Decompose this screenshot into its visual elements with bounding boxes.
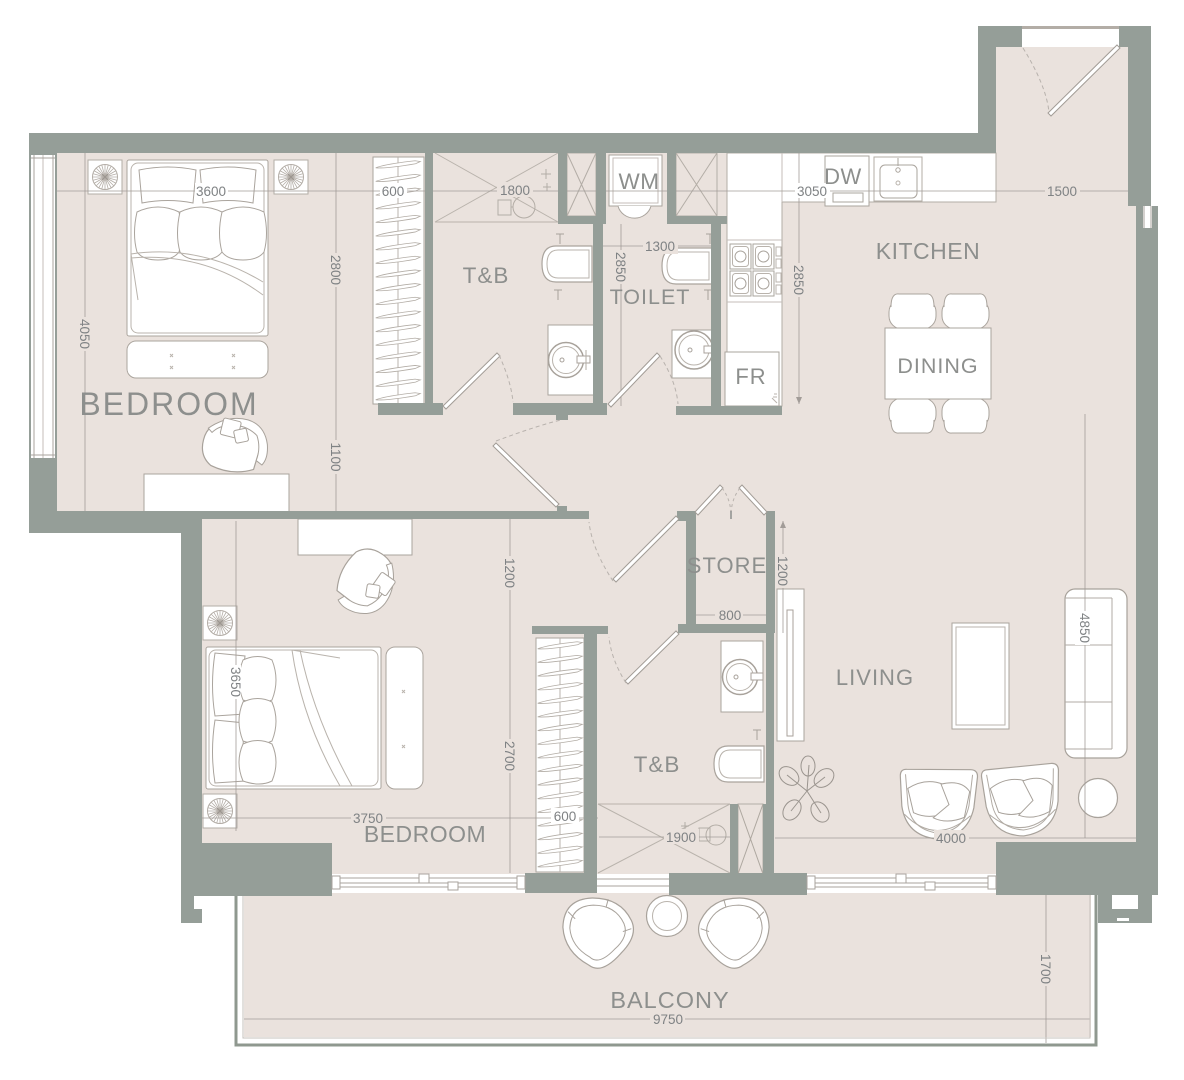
svg-text:T&B: T&B (463, 263, 510, 288)
svg-text:BEDROOM: BEDROOM (79, 386, 258, 422)
svg-text:600: 600 (554, 809, 577, 824)
svg-text:3650: 3650 (228, 667, 243, 697)
svg-text:T&B: T&B (634, 752, 681, 777)
svg-text:FR: FR (735, 364, 766, 389)
svg-text:1500: 1500 (1047, 184, 1077, 199)
svg-text:1900: 1900 (666, 830, 696, 845)
svg-text:9750: 9750 (653, 1012, 683, 1027)
svg-text:4000: 4000 (936, 831, 966, 846)
svg-text:3600: 3600 (196, 184, 226, 199)
svg-text:2700: 2700 (502, 741, 517, 771)
svg-text:1100: 1100 (328, 442, 343, 471)
svg-text:DW: DW (824, 164, 862, 189)
svg-text:1300: 1300 (645, 239, 675, 254)
svg-text:1200: 1200 (502, 558, 517, 588)
svg-text:STORE: STORE (687, 553, 767, 578)
svg-text:2850: 2850 (613, 252, 628, 282)
svg-text:1800: 1800 (500, 183, 530, 198)
svg-text:4050: 4050 (77, 319, 92, 349)
svg-text:1700: 1700 (1038, 954, 1053, 984)
svg-text:BALCONY: BALCONY (610, 987, 729, 1013)
svg-text:TOILET: TOILET (610, 285, 691, 309)
svg-text:1200: 1200 (775, 556, 790, 586)
svg-text:WM: WM (619, 169, 660, 194)
svg-text:BEDROOM: BEDROOM (364, 821, 486, 847)
svg-text:3050: 3050 (797, 184, 827, 199)
svg-text:DINING: DINING (897, 354, 978, 378)
svg-text:LIVING: LIVING (836, 665, 914, 690)
svg-text:4850: 4850 (1077, 613, 1092, 643)
svg-text:2800: 2800 (328, 255, 343, 285)
svg-text:2850: 2850 (791, 265, 806, 295)
svg-text:600: 600 (382, 184, 405, 199)
svg-text:800: 800 (719, 608, 742, 623)
svg-text:KITCHEN: KITCHEN (876, 238, 980, 264)
